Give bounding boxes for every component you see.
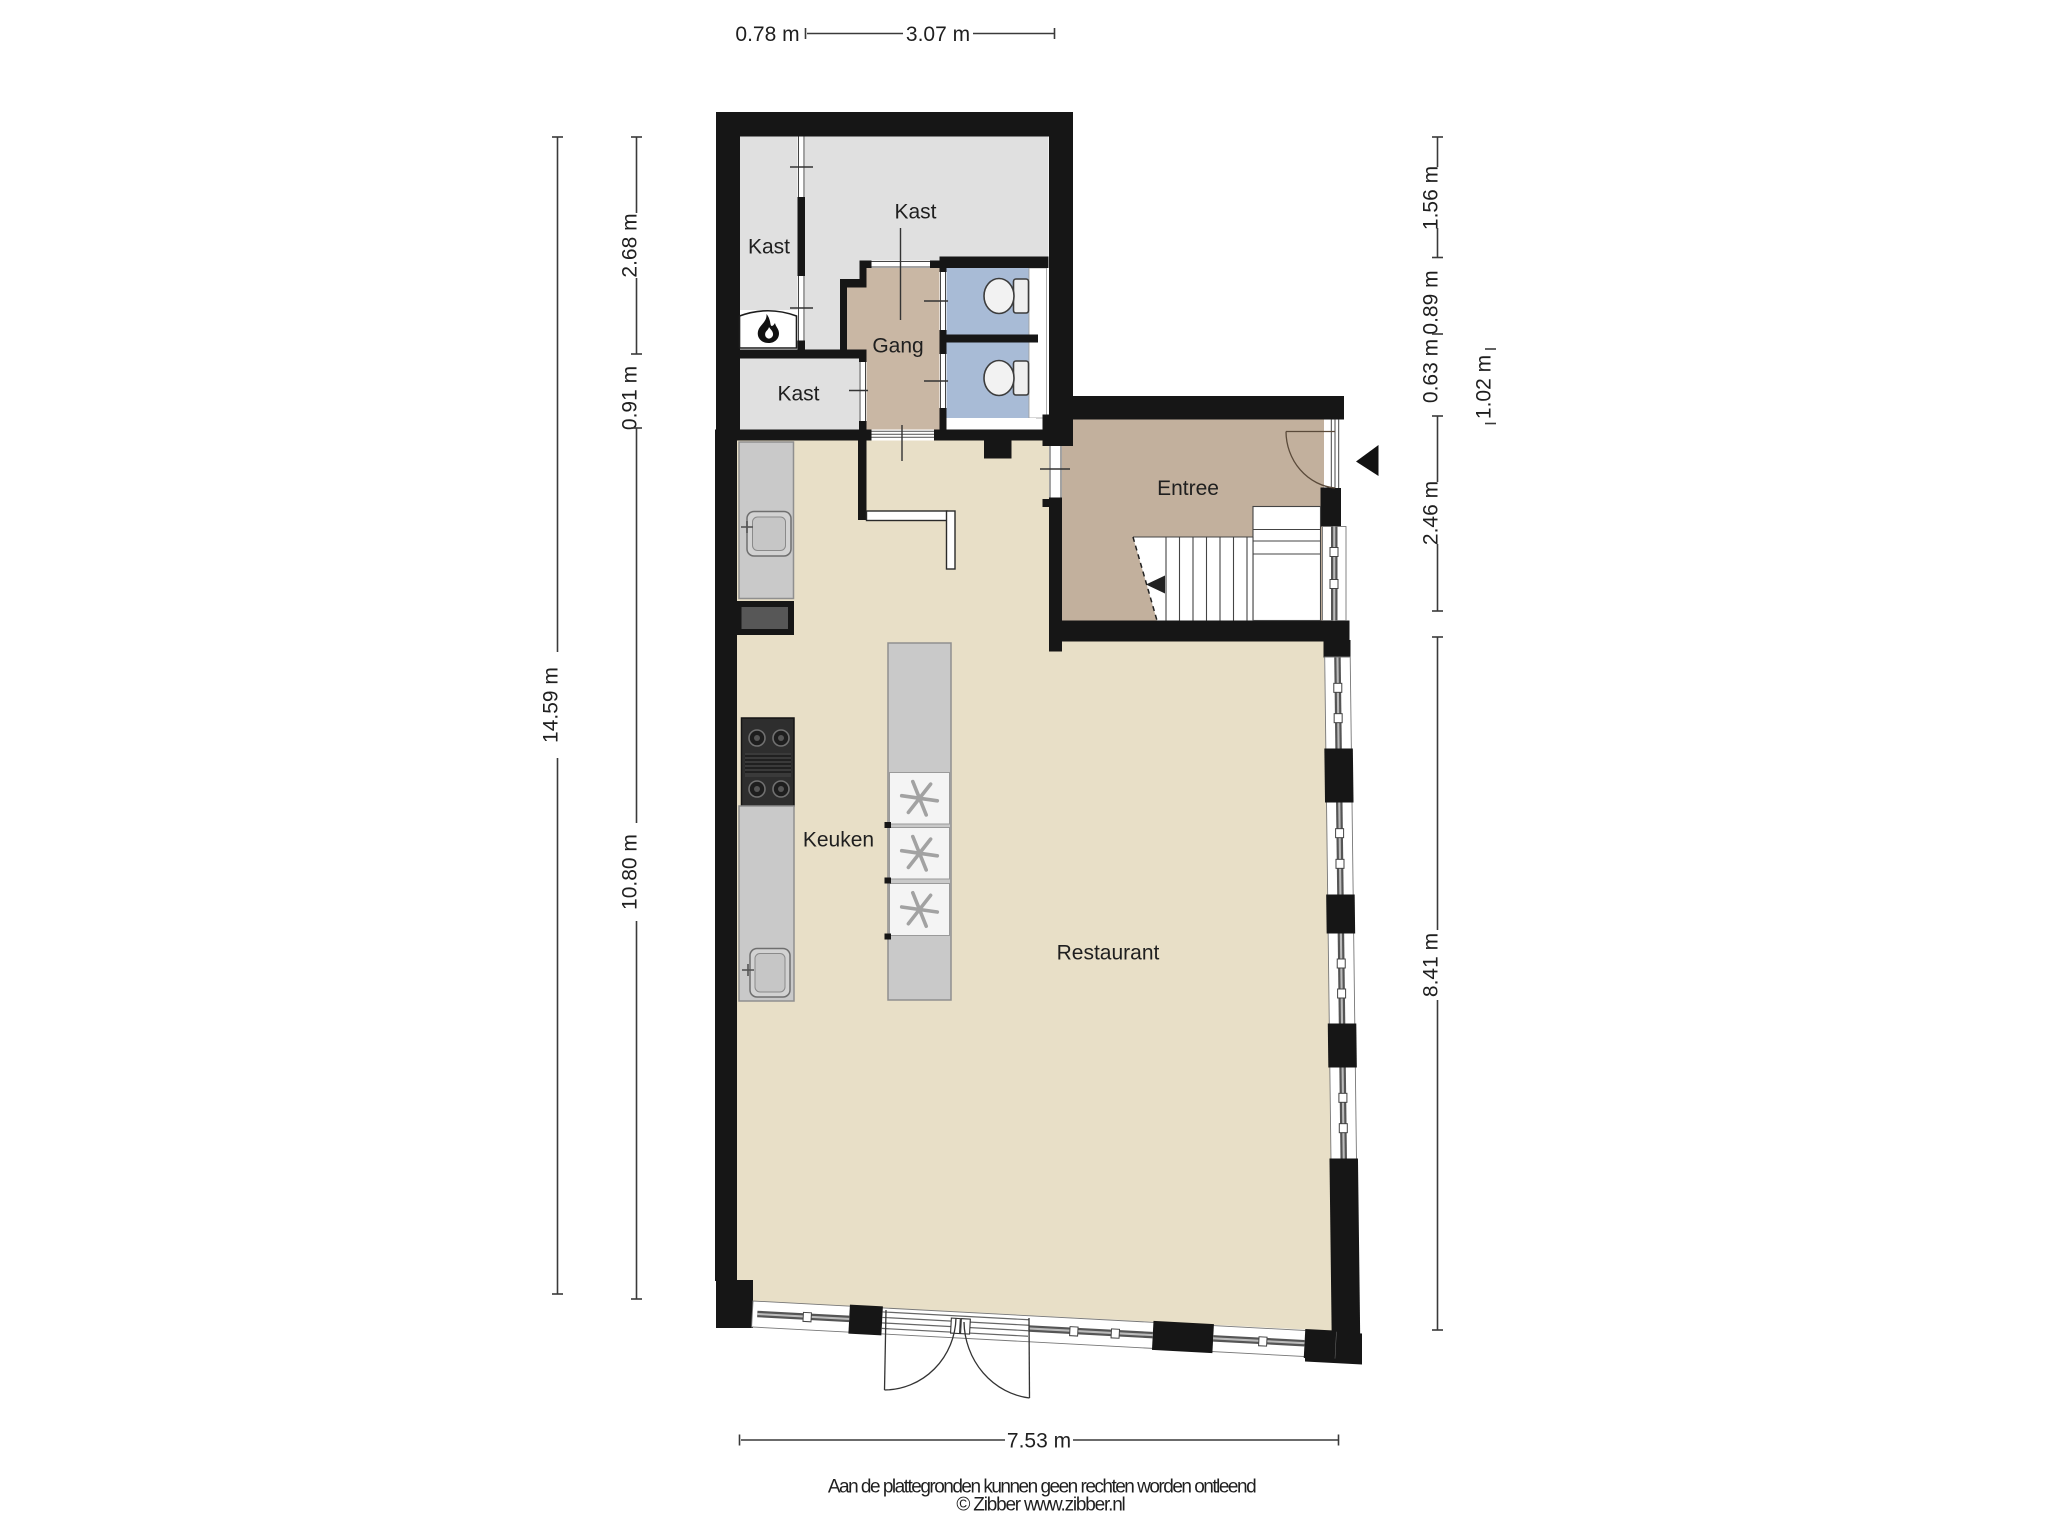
svg-text:2.46 m: 2.46 m bbox=[1420, 481, 1443, 545]
svg-text:14.59 m: 14.59 m bbox=[540, 667, 563, 743]
svg-text:0.89 m: 0.89 m bbox=[1420, 270, 1443, 334]
svg-text:Kast: Kast bbox=[894, 201, 936, 224]
svg-text:Gang: Gang bbox=[872, 335, 923, 358]
svg-text:0.91 m: 0.91 m bbox=[619, 366, 642, 430]
svg-text:1.02 m: 1.02 m bbox=[1473, 355, 1496, 419]
svg-text:8.41 m: 8.41 m bbox=[1420, 933, 1443, 997]
svg-text:Kast: Kast bbox=[777, 383, 819, 406]
svg-text:3.07 m: 3.07 m bbox=[906, 23, 970, 46]
svg-text:Keuken: Keuken bbox=[803, 829, 874, 852]
svg-text:10.80 m: 10.80 m bbox=[619, 834, 642, 910]
svg-text:1.56 m: 1.56 m bbox=[1420, 166, 1443, 230]
svg-text:0.78 m: 0.78 m bbox=[735, 23, 799, 46]
svg-text:Kast: Kast bbox=[748, 236, 790, 259]
svg-text:0.63 m: 0.63 m bbox=[1420, 339, 1443, 403]
svg-text:7.53 m: 7.53 m bbox=[1007, 1430, 1071, 1453]
svg-text:2.68 m: 2.68 m bbox=[619, 213, 642, 277]
svg-text:Restaurant: Restaurant bbox=[1057, 942, 1160, 965]
svg-text:Entree: Entree bbox=[1157, 477, 1219, 500]
svg-text:© Zibber www.zibber.nl: © Zibber www.zibber.nl bbox=[956, 1495, 1124, 1516]
